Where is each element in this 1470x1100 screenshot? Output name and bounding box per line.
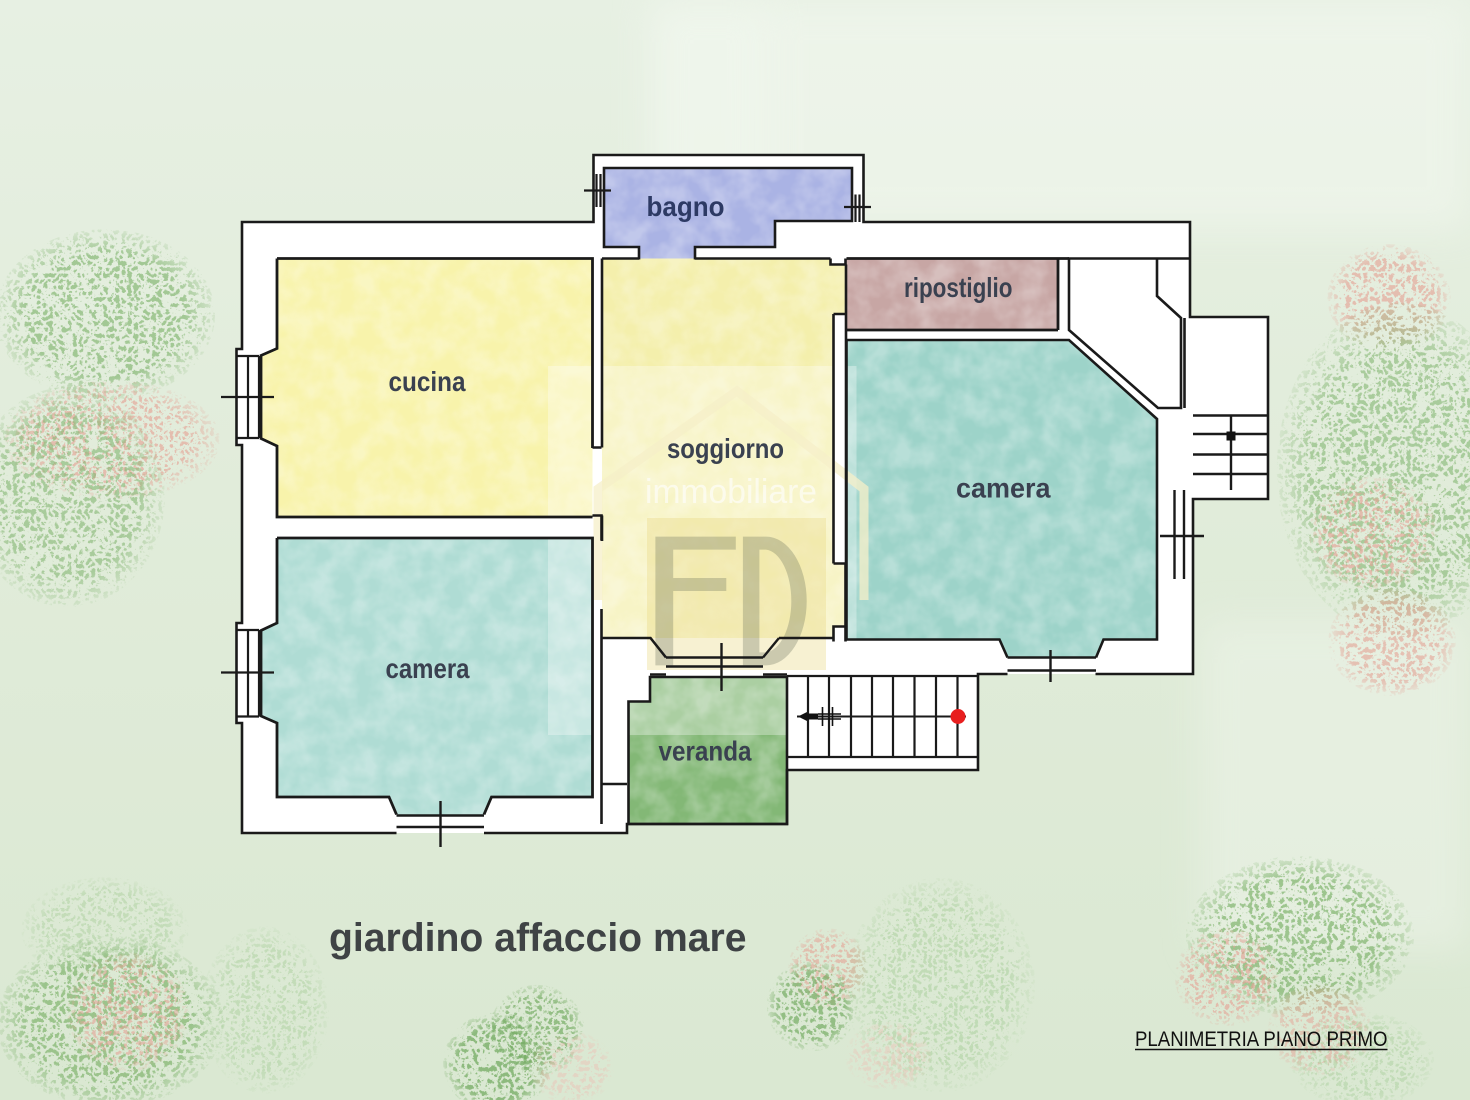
svg-text:veranda: veranda	[659, 736, 752, 767]
svg-text:camera: camera	[956, 473, 1051, 504]
svg-text:soggiorno: soggiorno	[667, 433, 784, 464]
svg-text:PLANIMETRIA PIANO PRIMO: PLANIMETRIA PIANO PRIMO	[1135, 1028, 1388, 1051]
svg-text:camera: camera	[386, 653, 470, 684]
svg-text:ripostiglio: ripostiglio	[904, 272, 1013, 303]
svg-text:giardino affaccio mare: giardino affaccio mare	[329, 916, 747, 960]
svg-text:immobiliare: immobiliare	[645, 473, 817, 511]
svg-text:cucina: cucina	[389, 366, 466, 397]
svg-text:bagno: bagno	[647, 191, 725, 222]
